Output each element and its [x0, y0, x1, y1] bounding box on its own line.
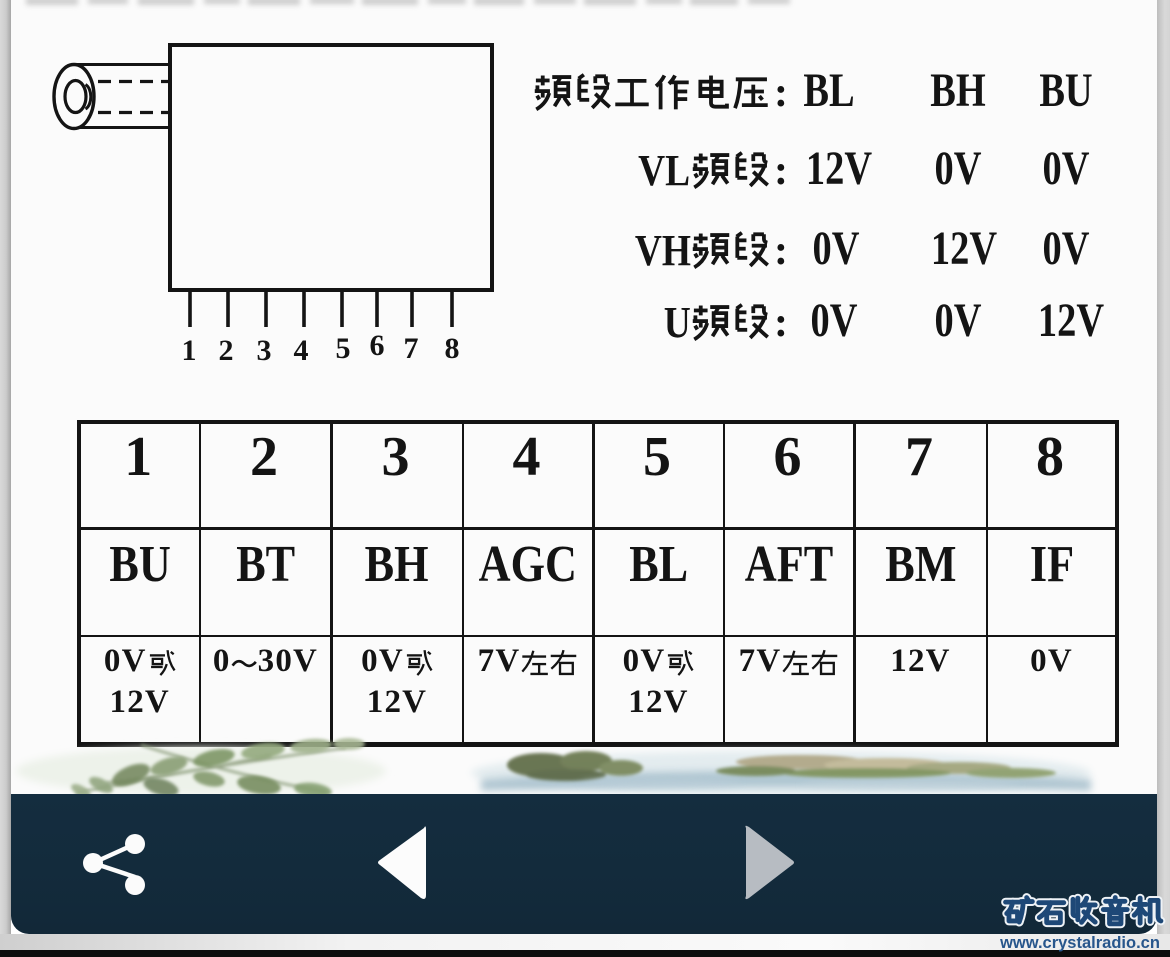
svg-text:1: 1 — [182, 334, 197, 367]
svg-text:2: 2 — [219, 334, 234, 367]
svg-text:8: 8 — [445, 332, 460, 365]
svg-text:4: 4 — [294, 334, 309, 367]
svg-text:www.crystalradio.cn: www.crystalradio.cn — [999, 934, 1160, 952]
svg-text:7: 7 — [404, 332, 419, 365]
svg-text:3: 3 — [257, 334, 272, 367]
svg-text:5: 5 — [336, 332, 351, 365]
svg-text:6: 6 — [370, 329, 385, 362]
